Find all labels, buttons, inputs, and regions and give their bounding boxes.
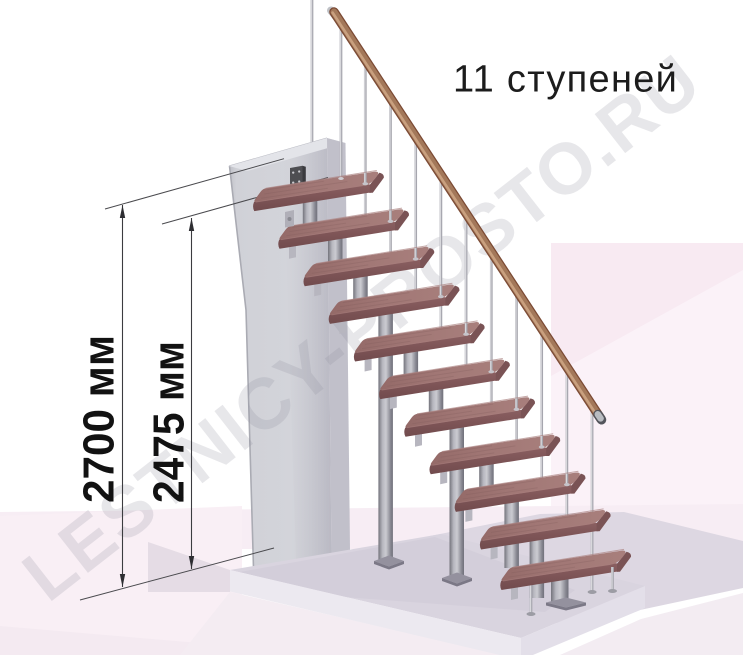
svg-text:2475 мм: 2475 мм — [144, 341, 193, 503]
svg-text:11 ступеней: 11 ступеней — [453, 59, 678, 101]
svg-text:2700 мм: 2700 мм — [75, 335, 124, 503]
